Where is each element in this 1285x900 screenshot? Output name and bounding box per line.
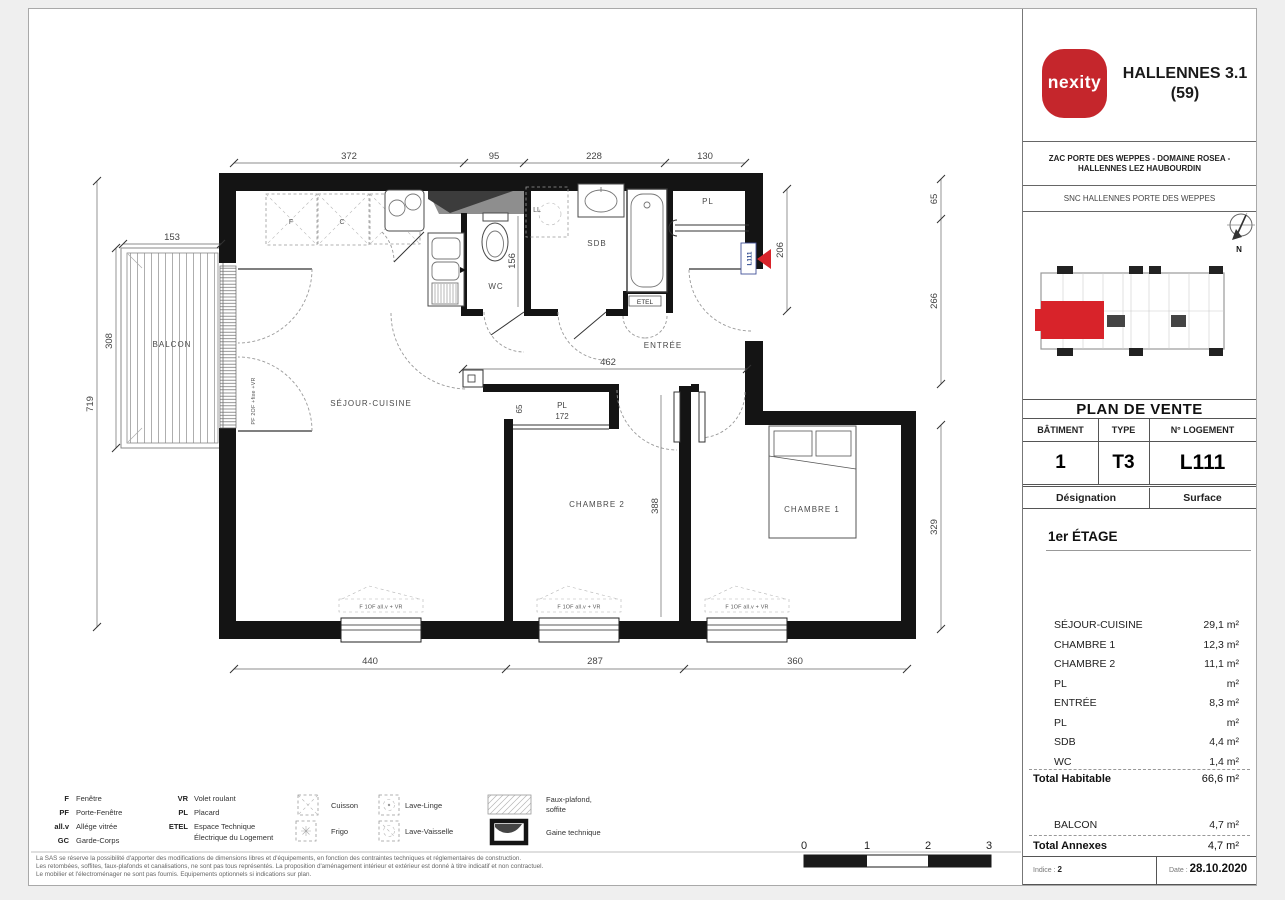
svg-text:329: 329 (929, 519, 940, 535)
svg-text:206: 206 (775, 242, 786, 258)
kitchen-sink (385, 190, 424, 231)
window-label: F 1OF all.v + VR (557, 605, 600, 611)
svg-text:all.v: all.v (54, 822, 69, 831)
batiment-value: 1 (1023, 441, 1098, 484)
cuisson-label: C (339, 219, 344, 226)
svg-text:1: 1 (864, 840, 870, 852)
disclaimer: La SAS se réserve la possibilité d'appor… (36, 855, 543, 878)
table-divider (1098, 419, 1099, 484)
floor-title: 1er ÉTAGE (1048, 529, 1118, 544)
window-label: F 1OF all.v + VR (725, 605, 768, 611)
total-habitable-row: Total Habitable 66,6 m² (1023, 772, 1256, 788)
svg-text:Le mobilier et l'électroménage: Le mobilier et l'électroménager ne sont … (36, 871, 312, 878)
svg-text:Gaine technique: Gaine technique (546, 828, 601, 837)
unit-number-label: L111 (747, 251, 754, 265)
legend: F Fenêtre PF Porte-Fenêtre all.v Allége … (54, 794, 600, 845)
svg-text:372: 372 (341, 151, 357, 162)
svg-text:Fenêtre: Fenêtre (76, 794, 102, 803)
floor-underline (1046, 550, 1251, 551)
svg-text:Volet roulant: Volet roulant (194, 794, 237, 803)
logement-value: L111 (1149, 441, 1256, 484)
svg-text:95: 95 (489, 151, 500, 162)
room-label-entree: ENTRÉE (644, 341, 682, 350)
dashed-separator (1029, 835, 1250, 836)
etel-label: ETEL (637, 299, 654, 306)
scale-bar: 0 1 2 3 (801, 840, 992, 867)
project-header: nexity HALLENNES 3.1 (59) (1023, 9, 1256, 142)
floorplan-drawing: F 1OF all.v + VR F 1OF all.v + VR F 1OF … (29, 9, 1022, 885)
zac-address: ZAC PORTE DES WEPPES - DOMAINE ROSEA - H… (1023, 141, 1256, 186)
entrance-door (689, 269, 751, 331)
svg-text:Porte-Fenêtre: Porte-Fenêtre (76, 808, 122, 817)
date: Date : 28.10.2020 (1169, 863, 1247, 875)
svg-text:GC: GC (58, 836, 70, 845)
window-chambre1: F 1OF all.v + VR (705, 586, 789, 642)
col-batiment: BÂTIMENT (1023, 419, 1098, 441)
frigo-label: F (289, 219, 293, 226)
unit-tag: L111 (741, 243, 771, 274)
type-value: T3 (1098, 441, 1149, 484)
svg-text:La SAS se réserve la possibili: La SAS se réserve la possibilité d'appor… (36, 855, 521, 862)
svg-text:VR: VR (178, 794, 189, 803)
radiator-box (463, 370, 483, 387)
title-block-panel: nexity HALLENNES 3.1 (59) ZAC PORTE DES … (1022, 9, 1256, 885)
room-label-chambre1: CHAMBRE 1 (784, 505, 840, 514)
key-plan: N (1023, 209, 1256, 399)
room-label-chambre2: CHAMBRE 2 (569, 500, 625, 509)
highlighted-unit (1035, 301, 1104, 339)
legend-lave-linge-icon (379, 795, 399, 815)
svg-text:287: 287 (587, 656, 603, 667)
plan-de-vente-title: PLAN DE VENTE (1023, 399, 1256, 419)
svg-text:Lave-Linge: Lave-Linge (405, 801, 442, 810)
svg-text:Allége vitrée: Allége vitrée (76, 822, 117, 831)
project-department: (59) (1115, 84, 1255, 104)
svg-text:266: 266 (929, 293, 940, 309)
indice-date-row: Indice : 2 Date : 28.10.2020 (1023, 856, 1256, 885)
surface-row: SDB4,4 m² (1023, 733, 1256, 753)
kitchen-cabinet (428, 233, 466, 306)
svg-text:Lave-Vaisselle: Lave-Vaisselle (405, 827, 453, 836)
balcony-door (220, 266, 312, 431)
col-type: TYPE (1098, 419, 1149, 441)
balcony-door-label: PF 2OF +fixe +VR (251, 377, 257, 424)
designation-label: Désignation (1023, 488, 1149, 508)
svg-text:156: 156 (507, 253, 518, 269)
svg-text:Frigo: Frigo (331, 827, 348, 836)
legend-gaine-icon (492, 821, 526, 843)
toilet (482, 213, 508, 261)
walls (219, 173, 916, 639)
svg-text:Garde-Corps: Garde-Corps (76, 836, 120, 845)
document-page: F 1OF all.v + VR F 1OF all.v + VR F 1OF … (28, 8, 1257, 886)
room-label-sejour: SÉJOUR-CUISINE (330, 399, 412, 408)
svg-text:0: 0 (801, 840, 807, 852)
svg-text:440: 440 (362, 656, 378, 667)
window-chambre2: F 1OF all.v + VR (537, 586, 621, 642)
indice: Indice : 2 (1033, 865, 1062, 874)
svg-text:388: 388 (650, 498, 661, 514)
svg-text:ETEL: ETEL (169, 822, 189, 831)
room-label-balcon: BALCON (153, 340, 192, 349)
svg-text:308: 308 (104, 333, 115, 349)
nexity-logo: nexity (1042, 49, 1107, 118)
window-sejour: F 1OF all.v + VR (339, 586, 423, 642)
svg-text:3: 3 (986, 840, 992, 852)
svg-text:F: F (64, 794, 69, 803)
room-label-pl: PL (702, 197, 714, 206)
svg-text:2: 2 (925, 840, 931, 852)
washbasin (578, 184, 624, 217)
svg-text:Placard: Placard (194, 808, 219, 817)
svg-text:130: 130 (697, 151, 713, 162)
svg-text:719: 719 (85, 396, 96, 412)
surface-row: CHAMBRE 211,1 m² (1023, 655, 1256, 675)
placard-ch2-front (513, 425, 609, 429)
surface-row: CHAMBRE 112,3 m² (1023, 636, 1256, 656)
svg-text:360: 360 (787, 656, 803, 667)
bed (769, 426, 856, 538)
svg-text:soffite: soffite (546, 805, 566, 814)
svg-text:PL: PL (178, 808, 188, 817)
svg-text:462: 462 (600, 357, 616, 368)
compass-icon: N (1227, 213, 1255, 254)
project-name: HALLENNES 3.1 (1115, 64, 1255, 84)
col-logement: N° LOGEMENT (1149, 419, 1256, 441)
legend-cuisson-icon (298, 795, 318, 815)
unit-table-header: BÂTIMENT TYPE N° LOGEMENT (1023, 419, 1256, 442)
svg-text:Électrique du Logement: Électrique du Logement (194, 833, 274, 842)
svg-text:228: 228 (586, 151, 602, 162)
surface-row: PLm² (1023, 714, 1256, 734)
project-title: HALLENNES 3.1 (59) (1115, 64, 1255, 104)
total-annexes-row: Total Annexes 4,7 m² (1023, 839, 1256, 855)
entrance-placard-sliding-door (669, 220, 749, 236)
table-divider (1149, 419, 1150, 484)
lave-linge-label: LL (533, 207, 541, 214)
etel-box: ETEL (629, 296, 661, 306)
bathtub (627, 189, 667, 292)
appliance-cuisson: C (318, 194, 369, 245)
window-label: F 1OF all.v + VR (359, 605, 402, 611)
room-label-sdb: SDB (587, 239, 606, 248)
appliance-lave-linge: LL (526, 187, 568, 237)
svg-text:PF: PF (59, 808, 69, 817)
dashed-separator (1029, 769, 1250, 770)
appliance-frigo: F (266, 194, 317, 245)
legend-frigo-icon (296, 821, 316, 841)
room-label-wc: WC (488, 282, 503, 291)
balcon-row: BALCON 4,7 m² (1023, 819, 1256, 833)
surface-label: Surface (1149, 488, 1256, 508)
surface-row: PLm² (1023, 675, 1256, 695)
building-footprint (1035, 266, 1224, 356)
svg-text:PL: PL (557, 401, 567, 410)
surface-row: SÉJOUR-CUISINE29,1 m² (1023, 616, 1256, 636)
svg-text:Les retombées, soffites, faux-: Les retombées, soffites, faux-plafonds e… (36, 863, 543, 870)
surface-list: SÉJOUR-CUISINE29,1 m² CHAMBRE 112,3 m² C… (1023, 616, 1256, 772)
svg-text:172: 172 (555, 412, 569, 421)
svg-text:Espace Technique: Espace Technique (194, 822, 255, 831)
svg-text:65: 65 (929, 194, 940, 205)
unit-table-values: 1 T3 L111 (1023, 441, 1256, 484)
surface-row: ENTRÉE8,3 m² (1023, 694, 1256, 714)
svg-text:Faux-plafond,: Faux-plafond, (546, 795, 592, 804)
svg-text:153: 153 (164, 232, 180, 243)
designation-header: Désignation Surface (1023, 488, 1256, 509)
svg-text:65: 65 (515, 404, 524, 413)
svg-text:Cuisson: Cuisson (331, 801, 358, 810)
north-label: N (1236, 245, 1242, 254)
gaine-technique-wedge (428, 191, 524, 214)
legend-lave-vaisselle-icon (379, 821, 399, 841)
legend-faux-plafond-icon (488, 795, 531, 814)
double-rule (1023, 484, 1256, 487)
brand-name: nexity (1048, 72, 1102, 92)
